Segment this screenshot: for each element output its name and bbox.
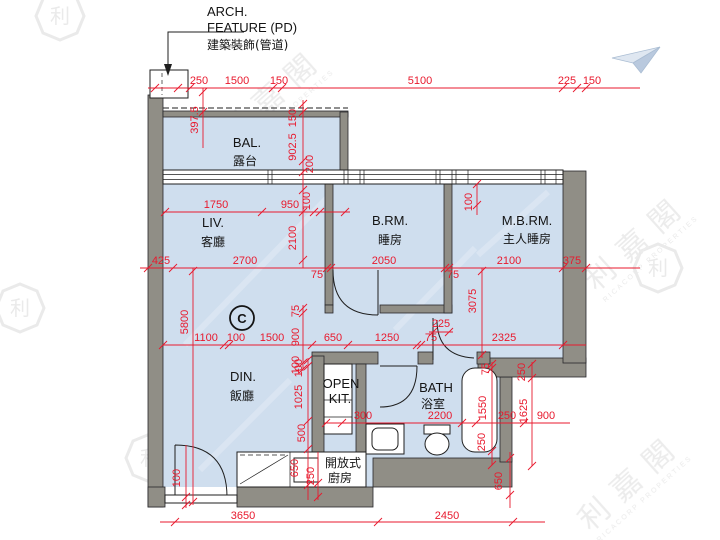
- svg-text:1500: 1500: [260, 332, 284, 344]
- svg-text:200: 200: [304, 155, 316, 173]
- arch-feature-line3: 建築裝飾(管道): [207, 37, 288, 52]
- svg-text:5100: 5100: [408, 75, 432, 87]
- svg-text:900: 900: [537, 410, 555, 422]
- svg-text:397.5: 397.5: [189, 106, 201, 134]
- floor-plan-drawing: 利 利 利 利 利 利嘉閣 RICACORP PROPERTIES 利嘉閣 RI…: [0, 0, 720, 540]
- svg-text:利嘉閣: 利嘉閣: [572, 426, 691, 538]
- basin-bowl: [372, 428, 398, 450]
- svg-text:客廳: 客廳: [201, 234, 225, 249]
- room-label-mbrm: M.B.RM.: [502, 213, 553, 228]
- watermark-logo: 利: [50, 4, 70, 28]
- svg-text:375: 375: [563, 255, 581, 267]
- svg-text:2700: 2700: [233, 255, 257, 267]
- dim-label: 250: [190, 75, 208, 87]
- svg-text:飯廳: 飯廳: [230, 388, 254, 403]
- svg-text:2050: 2050: [372, 255, 396, 267]
- svg-text:250: 250: [305, 467, 317, 485]
- svg-text:950: 950: [281, 199, 299, 211]
- svg-text:2450: 2450: [435, 510, 459, 522]
- svg-text:300: 300: [354, 410, 372, 422]
- room-label-kit: OPEN: [323, 376, 360, 391]
- room-label-bath: BATH: [419, 380, 453, 395]
- svg-text:2200: 2200: [428, 410, 452, 422]
- svg-text:5800: 5800: [179, 310, 191, 334]
- svg-text:1250: 1250: [375, 332, 399, 344]
- svg-text:廚房: 廚房: [328, 470, 352, 485]
- svg-text:主人睡房: 主人睡房: [503, 231, 551, 246]
- svg-text:2100: 2100: [497, 255, 521, 267]
- svg-text:100: 100: [301, 192, 313, 210]
- svg-text:75: 75: [480, 363, 492, 375]
- svg-text:650: 650: [324, 332, 342, 344]
- floor-plan-page: 利 利 利 利 利 利嘉閣 RICACORP PROPERTIES 利嘉閣 RI…: [0, 0, 720, 540]
- svg-text:KIT.: KIT.: [329, 391, 351, 406]
- svg-text:3075: 3075: [467, 289, 479, 313]
- svg-text:1500: 1500: [225, 75, 249, 87]
- north-arrow-icon: [612, 47, 660, 73]
- arch-feature-line1: ARCH.: [207, 4, 247, 19]
- svg-text:100: 100: [171, 469, 183, 487]
- svg-text:902.5: 902.5: [287, 133, 299, 161]
- svg-text:1100: 1100: [194, 332, 218, 344]
- svg-text:3650: 3650: [231, 510, 255, 522]
- svg-text:1625: 1625: [518, 399, 530, 423]
- svg-text:75: 75: [290, 305, 302, 317]
- svg-text:浴室: 浴室: [421, 396, 445, 411]
- svg-text:650: 650: [289, 459, 301, 477]
- svg-text:500: 500: [296, 424, 308, 442]
- svg-text:露台: 露台: [233, 153, 257, 168]
- svg-text:1750: 1750: [204, 199, 228, 211]
- svg-text:利嘉閣: 利嘉閣: [578, 186, 697, 298]
- svg-text:睡房: 睡房: [378, 232, 402, 247]
- unit-label: C: [237, 311, 247, 326]
- svg-text:425: 425: [152, 255, 170, 267]
- svg-text:225: 225: [432, 318, 450, 330]
- svg-text:225: 225: [558, 75, 576, 87]
- window-band: [163, 170, 563, 184]
- svg-text:100: 100: [463, 193, 475, 211]
- svg-text:150: 150: [287, 109, 299, 127]
- arch-feature-line2: FEATURE (PD): [207, 20, 297, 35]
- svg-text:利: 利: [10, 296, 30, 320]
- svg-text:2100: 2100: [287, 226, 299, 250]
- svg-text:150: 150: [270, 75, 288, 87]
- svg-text:100: 100: [227, 332, 245, 344]
- svg-text:650: 650: [493, 472, 505, 490]
- room-label-brm: B.RM.: [372, 213, 408, 228]
- svg-text:250: 250: [476, 433, 488, 451]
- svg-text:開放式: 開放式: [325, 455, 361, 470]
- svg-text:1025: 1025: [293, 385, 305, 409]
- svg-text:2325: 2325: [492, 332, 516, 344]
- toilet: [425, 433, 449, 455]
- room-label-liv: LIV.: [202, 215, 224, 230]
- room-label-din: DIN.: [230, 369, 256, 384]
- svg-text:75: 75: [311, 269, 323, 281]
- svg-text:150: 150: [583, 75, 601, 87]
- svg-text:900: 900: [290, 328, 302, 346]
- svg-text:75: 75: [447, 269, 459, 281]
- svg-text:1550: 1550: [477, 396, 489, 420]
- svg-text:75: 75: [425, 332, 437, 344]
- svg-text:100: 100: [293, 359, 305, 377]
- svg-text:250: 250: [498, 410, 516, 422]
- svg-text:250: 250: [516, 363, 528, 381]
- room-label-bal: BAL.: [233, 135, 261, 150]
